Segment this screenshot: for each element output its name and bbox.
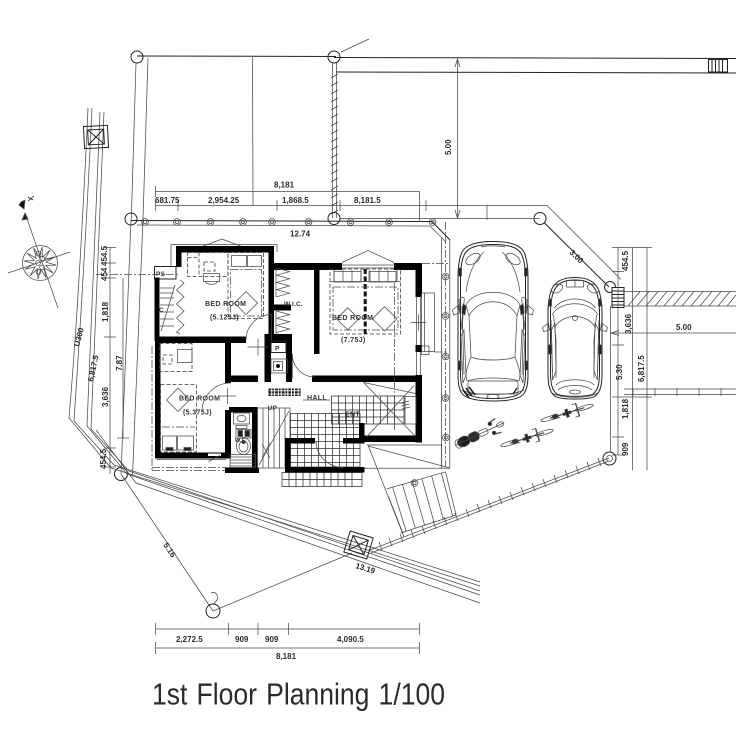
svg-text:3,636: 3,636 (101, 386, 110, 407)
svg-text:12.74: 12.74 (290, 230, 311, 239)
svg-text:4,090.5: 4,090.5 (337, 635, 364, 644)
svg-text:2,954.25: 2,954.25 (208, 196, 240, 205)
svg-text:W.I.C.: W.I.C. (284, 301, 303, 308)
svg-text:1,818: 1,818 (621, 398, 630, 419)
svg-text:5.30: 5.30 (615, 364, 624, 380)
svg-text:2,272.5: 2,272.5 (176, 635, 203, 644)
svg-text:8,181.5: 8,181.5 (354, 196, 381, 205)
svg-text:909: 909 (235, 635, 249, 644)
svg-text:P: P (275, 346, 280, 353)
svg-text:ENT: ENT (345, 412, 360, 419)
svg-text:7.87: 7.87 (115, 355, 124, 371)
svg-text:C: C (159, 307, 164, 314)
svg-text:909: 909 (265, 635, 279, 644)
svg-text:6,817.5: 6,817.5 (637, 355, 646, 382)
svg-text:1,818: 1,818 (101, 301, 110, 322)
svg-text:681.75: 681.75 (155, 196, 180, 205)
svg-text:BED ROOM: BED ROOM (205, 301, 246, 308)
svg-text:454.5: 454.5 (99, 448, 108, 469)
svg-text:BED ROOM: BED ROOM (179, 396, 220, 403)
svg-text:8,181: 8,181 (276, 652, 297, 661)
svg-text:454: 454 (100, 267, 109, 281)
svg-text:(7.75J): (7.75J) (341, 337, 366, 344)
svg-text:3,636: 3,636 (624, 313, 633, 334)
svg-text:(5.125J): (5.125J) (210, 315, 239, 322)
svg-text:1st Floor Planning 1/100: 1st Floor Planning 1/100 (152, 678, 445, 712)
svg-text:5.00: 5.00 (676, 323, 692, 332)
svg-text:BED ROOM: BED ROOM (332, 315, 373, 322)
svg-text:454.5: 454.5 (621, 250, 630, 271)
svg-text:W.C: W.C (235, 438, 246, 444)
svg-text:454.5: 454.5 (100, 245, 109, 266)
svg-text:HALL: HALL (307, 395, 327, 402)
svg-text:8,181: 8,181 (274, 181, 295, 190)
svg-text:UP: UP (268, 405, 278, 412)
svg-text:5.00: 5.00 (444, 139, 453, 155)
svg-text:909: 909 (621, 442, 630, 456)
svg-text:1,868.5: 1,868.5 (282, 196, 309, 205)
svg-text:(5.375J): (5.375J) (183, 410, 212, 417)
